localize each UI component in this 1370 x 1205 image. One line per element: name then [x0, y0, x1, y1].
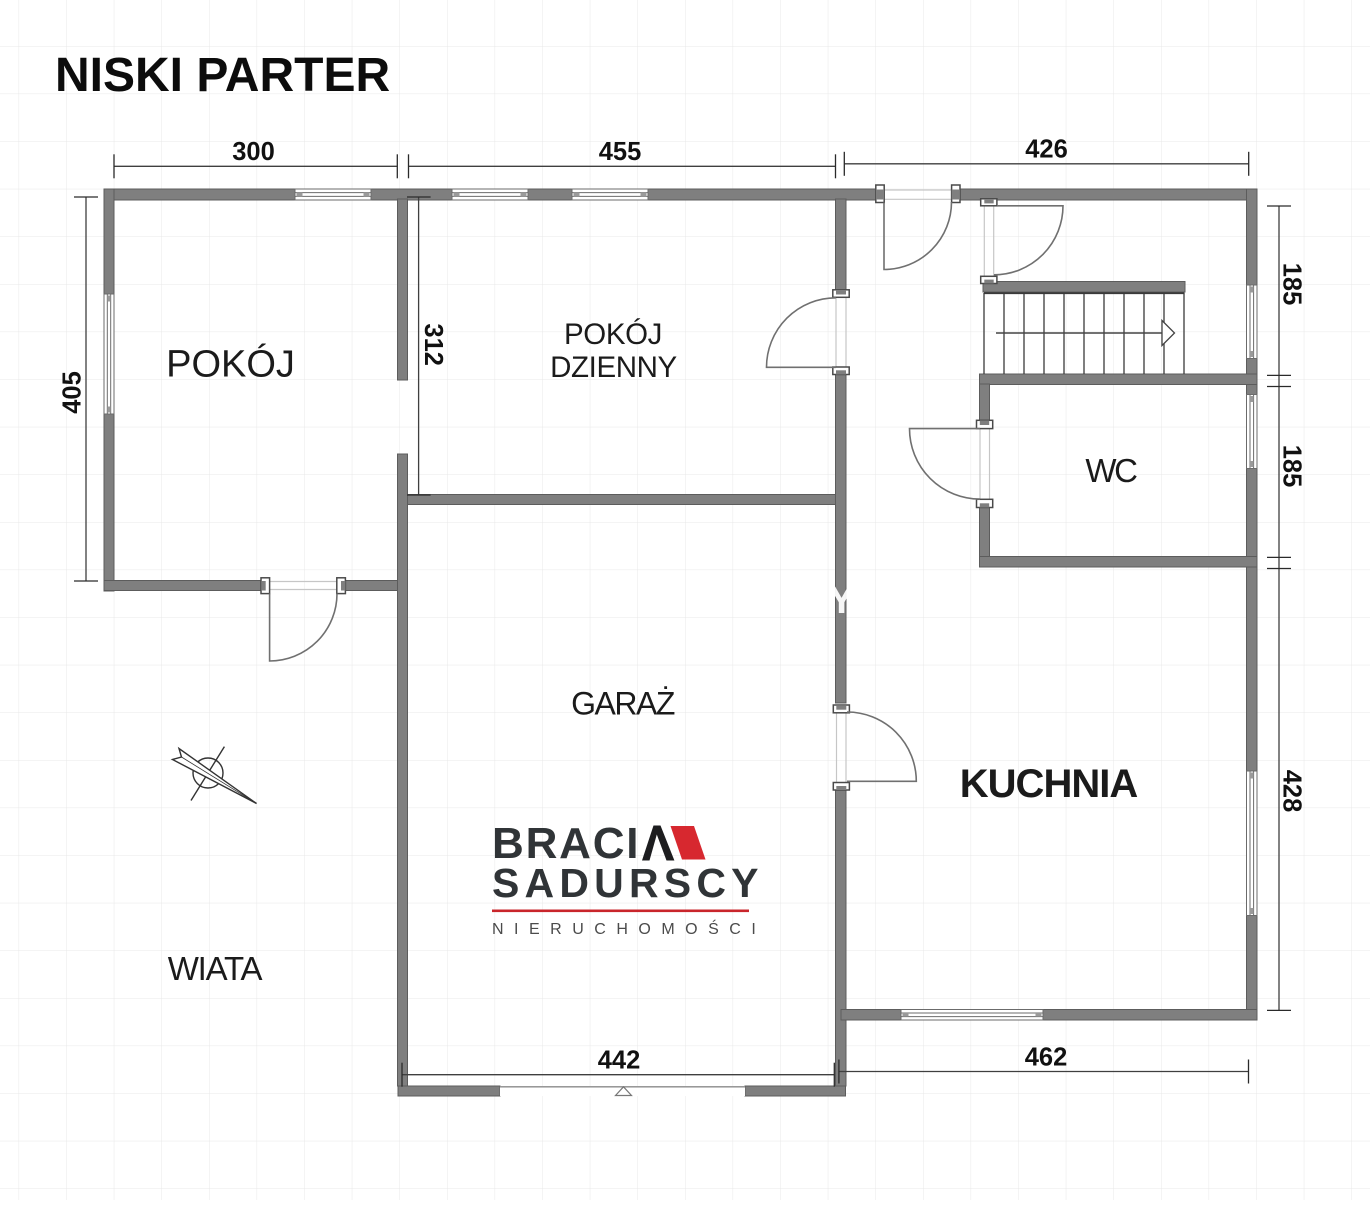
svg-text:185: 185: [1278, 445, 1306, 488]
svg-text:POKÓJ: POKÓJ: [564, 318, 662, 351]
svg-text:455: 455: [599, 138, 642, 166]
svg-text:GARAŻ: GARAŻ: [571, 686, 675, 722]
svg-text:WIATA: WIATA: [168, 950, 263, 987]
svg-text:462: 462: [1025, 1044, 1068, 1072]
svg-text:300: 300: [232, 138, 275, 166]
svg-text:428: 428: [1278, 770, 1306, 813]
svg-text:442: 442: [598, 1047, 641, 1075]
svg-text:312: 312: [419, 323, 447, 366]
svg-text:NIERUCHOMOŚCI: NIERUCHOMOŚCI: [492, 919, 766, 938]
svg-text:Y: Y: [829, 580, 854, 622]
svg-text:NISKI PARTER: NISKI PARTER: [55, 49, 390, 102]
svg-text:DZIENNY: DZIENNY: [550, 351, 677, 384]
svg-text:185: 185: [1278, 263, 1306, 306]
svg-text:POKÓJ: POKÓJ: [166, 343, 295, 386]
svg-text:KUCHNIA: KUCHNIA: [960, 762, 1138, 806]
svg-text:SADURSCY: SADURSCY: [492, 860, 764, 906]
svg-text:WC: WC: [1085, 452, 1137, 489]
svg-text:405: 405: [59, 371, 87, 414]
svg-text:426: 426: [1025, 136, 1068, 164]
